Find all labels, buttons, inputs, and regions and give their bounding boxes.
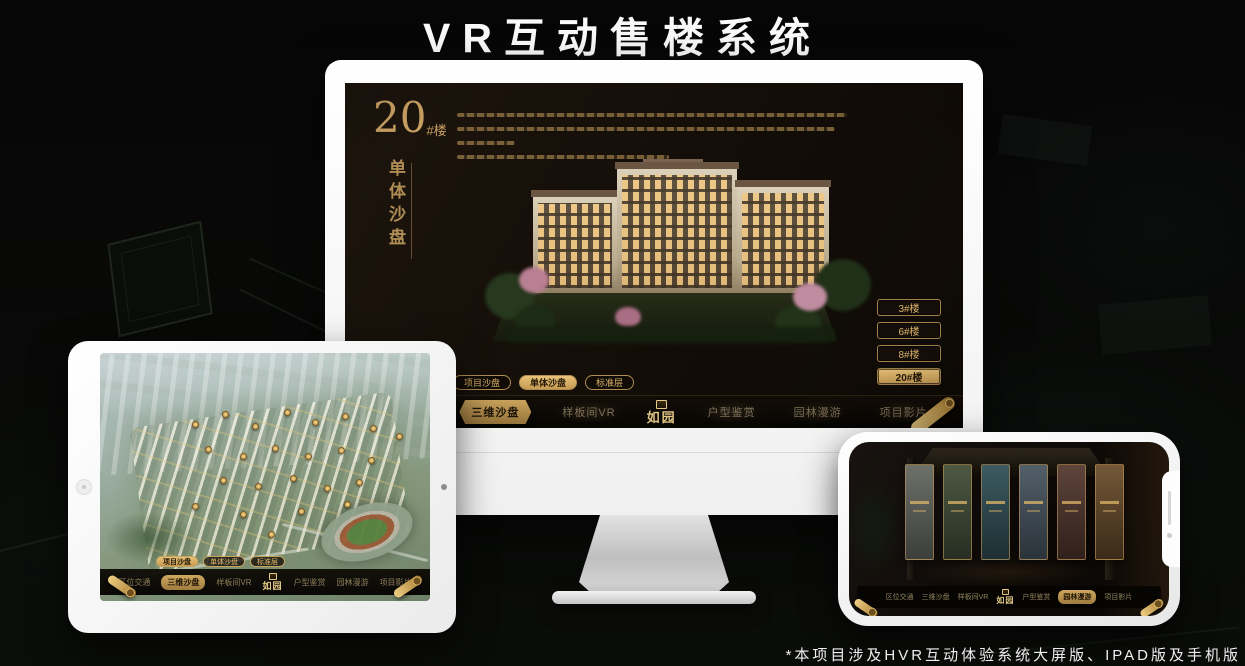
subtab-single-sandbox[interactable]: 单体沙盘 xyxy=(203,556,245,567)
tablet-screen: 项目沙盘 单体沙盘 标准层 区位交通 三维沙盘 样板间VR 如园 户型鉴赏 园林… xyxy=(100,353,430,601)
building-3d-render[interactable] xyxy=(475,155,865,370)
nav-item-floorplan-gallery[interactable]: 户型鉴赏 xyxy=(1022,592,1050,602)
phone-device: 区位交通 三维沙盘 样板间VR 如园 户型鉴赏 园林漫游 项目影片 xyxy=(838,432,1180,626)
nav-item-showroom-vr[interactable]: 样板间VR xyxy=(958,592,989,602)
page-title: VR互动售楼系统 xyxy=(0,4,1245,64)
monitor-stand-neck xyxy=(579,515,729,593)
building-badge[interactable] xyxy=(368,457,375,464)
nav-item-showroom-vr[interactable]: 样板间VR xyxy=(555,401,622,423)
subtab-standard-floor[interactable]: 标准层 xyxy=(585,375,634,390)
brand-seal-icon xyxy=(269,573,277,580)
scene-card[interactable] xyxy=(1057,464,1086,560)
footnote-text: *本项目涉及HVR互动体验系统大屏版、IPAD版及手机版 xyxy=(786,644,1241,665)
building-badge[interactable] xyxy=(344,501,351,508)
building-badge[interactable] xyxy=(342,413,349,420)
floor-button-group: 3#楼 6#楼 8#楼 20#楼 xyxy=(877,293,941,391)
brand-logo-text: 如园 xyxy=(996,597,1014,605)
building-badge[interactable] xyxy=(356,479,363,486)
pink-tree xyxy=(793,283,827,311)
monitor-stand-base xyxy=(552,591,756,604)
building-badge[interactable] xyxy=(298,508,305,515)
nav-item-garden-roam[interactable]: 园林漫游 xyxy=(1058,590,1096,604)
tablet-home-button[interactable] xyxy=(441,484,447,490)
subtab-project-sandbox[interactable]: 项目沙盘 xyxy=(156,556,198,567)
phone-navbar: 区位交通 三维沙盘 样板间VR 如园 户型鉴赏 园林漫游 项目影片 xyxy=(857,586,1161,608)
scene-card[interactable] xyxy=(1095,464,1124,560)
tablet-subtabs: 项目沙盘 单体沙盘 标准层 xyxy=(156,556,285,567)
building-number: 20 xyxy=(373,97,426,139)
scene-card[interactable] xyxy=(981,464,1010,560)
brand-logo-text: 如园 xyxy=(647,411,677,424)
scene-card[interactable] xyxy=(943,464,972,560)
building-badge[interactable] xyxy=(240,453,247,460)
building-badge[interactable] xyxy=(370,425,377,432)
nav-item-floorplan-gallery[interactable]: 户型鉴赏 xyxy=(701,401,763,423)
building-badge[interactable] xyxy=(305,453,312,460)
text-line xyxy=(457,141,515,145)
background-building xyxy=(998,114,1093,166)
scene-card[interactable] xyxy=(905,464,934,560)
nav-item-3d-sandbox[interactable]: 三维沙盘 xyxy=(459,400,531,424)
brand-seal-icon xyxy=(656,400,667,409)
building-badge[interactable] xyxy=(252,423,259,430)
building-badge[interactable] xyxy=(192,503,199,510)
pink-tree xyxy=(615,307,641,327)
nav-item-3d-sandbox[interactable]: 三维沙盘 xyxy=(161,575,205,590)
floor-button-20[interactable]: 20#楼 xyxy=(877,368,941,385)
brand-seal-icon xyxy=(1002,589,1009,595)
headline-divider xyxy=(411,163,412,259)
building-badge[interactable] xyxy=(338,447,345,454)
nav-item-project-film[interactable]: 项目影片 xyxy=(1104,592,1132,602)
brand-logo-text: 如园 xyxy=(263,582,283,591)
background-plaque xyxy=(107,221,212,338)
building-badge[interactable] xyxy=(268,531,275,538)
promo-canvas: VR互动售楼系统 20#楼 单体沙盘 xyxy=(0,0,1245,666)
building-badge[interactable] xyxy=(205,446,212,453)
pink-tree xyxy=(519,267,549,293)
building-badge[interactable] xyxy=(312,419,319,426)
building-badge[interactable] xyxy=(222,411,229,418)
tablet-camera-icon xyxy=(76,479,92,495)
shrub-row xyxy=(505,327,835,343)
nav-item-3d-sandbox[interactable]: 三维沙盘 xyxy=(922,592,950,602)
nav-item-garden-roam[interactable]: 园林漫游 xyxy=(337,577,369,588)
building-badge[interactable] xyxy=(240,511,247,518)
nav-item-location-traffic[interactable]: 区位交通 xyxy=(886,592,914,602)
phone-screen: 区位交通 三维沙盘 样板间VR 如园 户型鉴赏 园林漫游 项目影片 xyxy=(849,442,1169,616)
building-headline: 20#楼 xyxy=(373,97,447,139)
floor-button-8[interactable]: 8#楼 xyxy=(877,345,941,362)
building-badge[interactable] xyxy=(290,475,297,482)
phone-speaker-icon xyxy=(1168,491,1171,525)
phone-camera-icon xyxy=(1167,533,1172,538)
nav-item-garden-roam[interactable]: 园林漫游 xyxy=(787,401,849,423)
building-badge[interactable] xyxy=(324,485,331,492)
building-badge[interactable] xyxy=(192,421,199,428)
building-number-suffix: #楼 xyxy=(426,123,446,138)
sandbox-subtabs: 项目沙盘 单体沙盘 标准层 xyxy=(453,375,634,390)
subtab-single-sandbox[interactable]: 单体沙盘 xyxy=(519,375,577,390)
background-building xyxy=(1098,295,1212,354)
scene-card[interactable] xyxy=(1019,464,1048,560)
building-badge[interactable] xyxy=(220,477,227,484)
text-line xyxy=(457,127,835,131)
scene-gallery xyxy=(905,464,1124,560)
tablet-navbar: 区位交通 三维沙盘 样板间VR 如园 户型鉴赏 园林漫游 项目影片 xyxy=(100,569,430,595)
headline-vertical-title: 单体沙盘 xyxy=(383,159,408,251)
building-badge[interactable] xyxy=(284,409,291,416)
building-badge[interactable] xyxy=(396,433,403,440)
text-line xyxy=(457,113,847,117)
nav-item-floorplan-gallery[interactable]: 户型鉴赏 xyxy=(294,577,326,588)
tablet-device: 项目沙盘 单体沙盘 标准层 区位交通 三维沙盘 样板间VR 如园 户型鉴赏 园林… xyxy=(68,341,456,633)
subtab-project-sandbox[interactable]: 项目沙盘 xyxy=(453,375,511,390)
building-core xyxy=(617,169,737,293)
subtab-standard-floor[interactable]: 标准层 xyxy=(250,556,285,567)
brand-logo: 如园 xyxy=(263,573,283,591)
phone-notch xyxy=(1162,471,1180,567)
brand-logo: 如园 xyxy=(647,400,677,424)
nav-item-showroom-vr[interactable]: 样板间VR xyxy=(216,577,251,588)
floor-button-6[interactable]: 6#楼 xyxy=(877,322,941,339)
brand-logo: 如园 xyxy=(996,589,1014,605)
building-badge[interactable] xyxy=(272,445,279,452)
building-badge[interactable] xyxy=(255,483,262,490)
floor-button-3[interactable]: 3#楼 xyxy=(877,299,941,316)
